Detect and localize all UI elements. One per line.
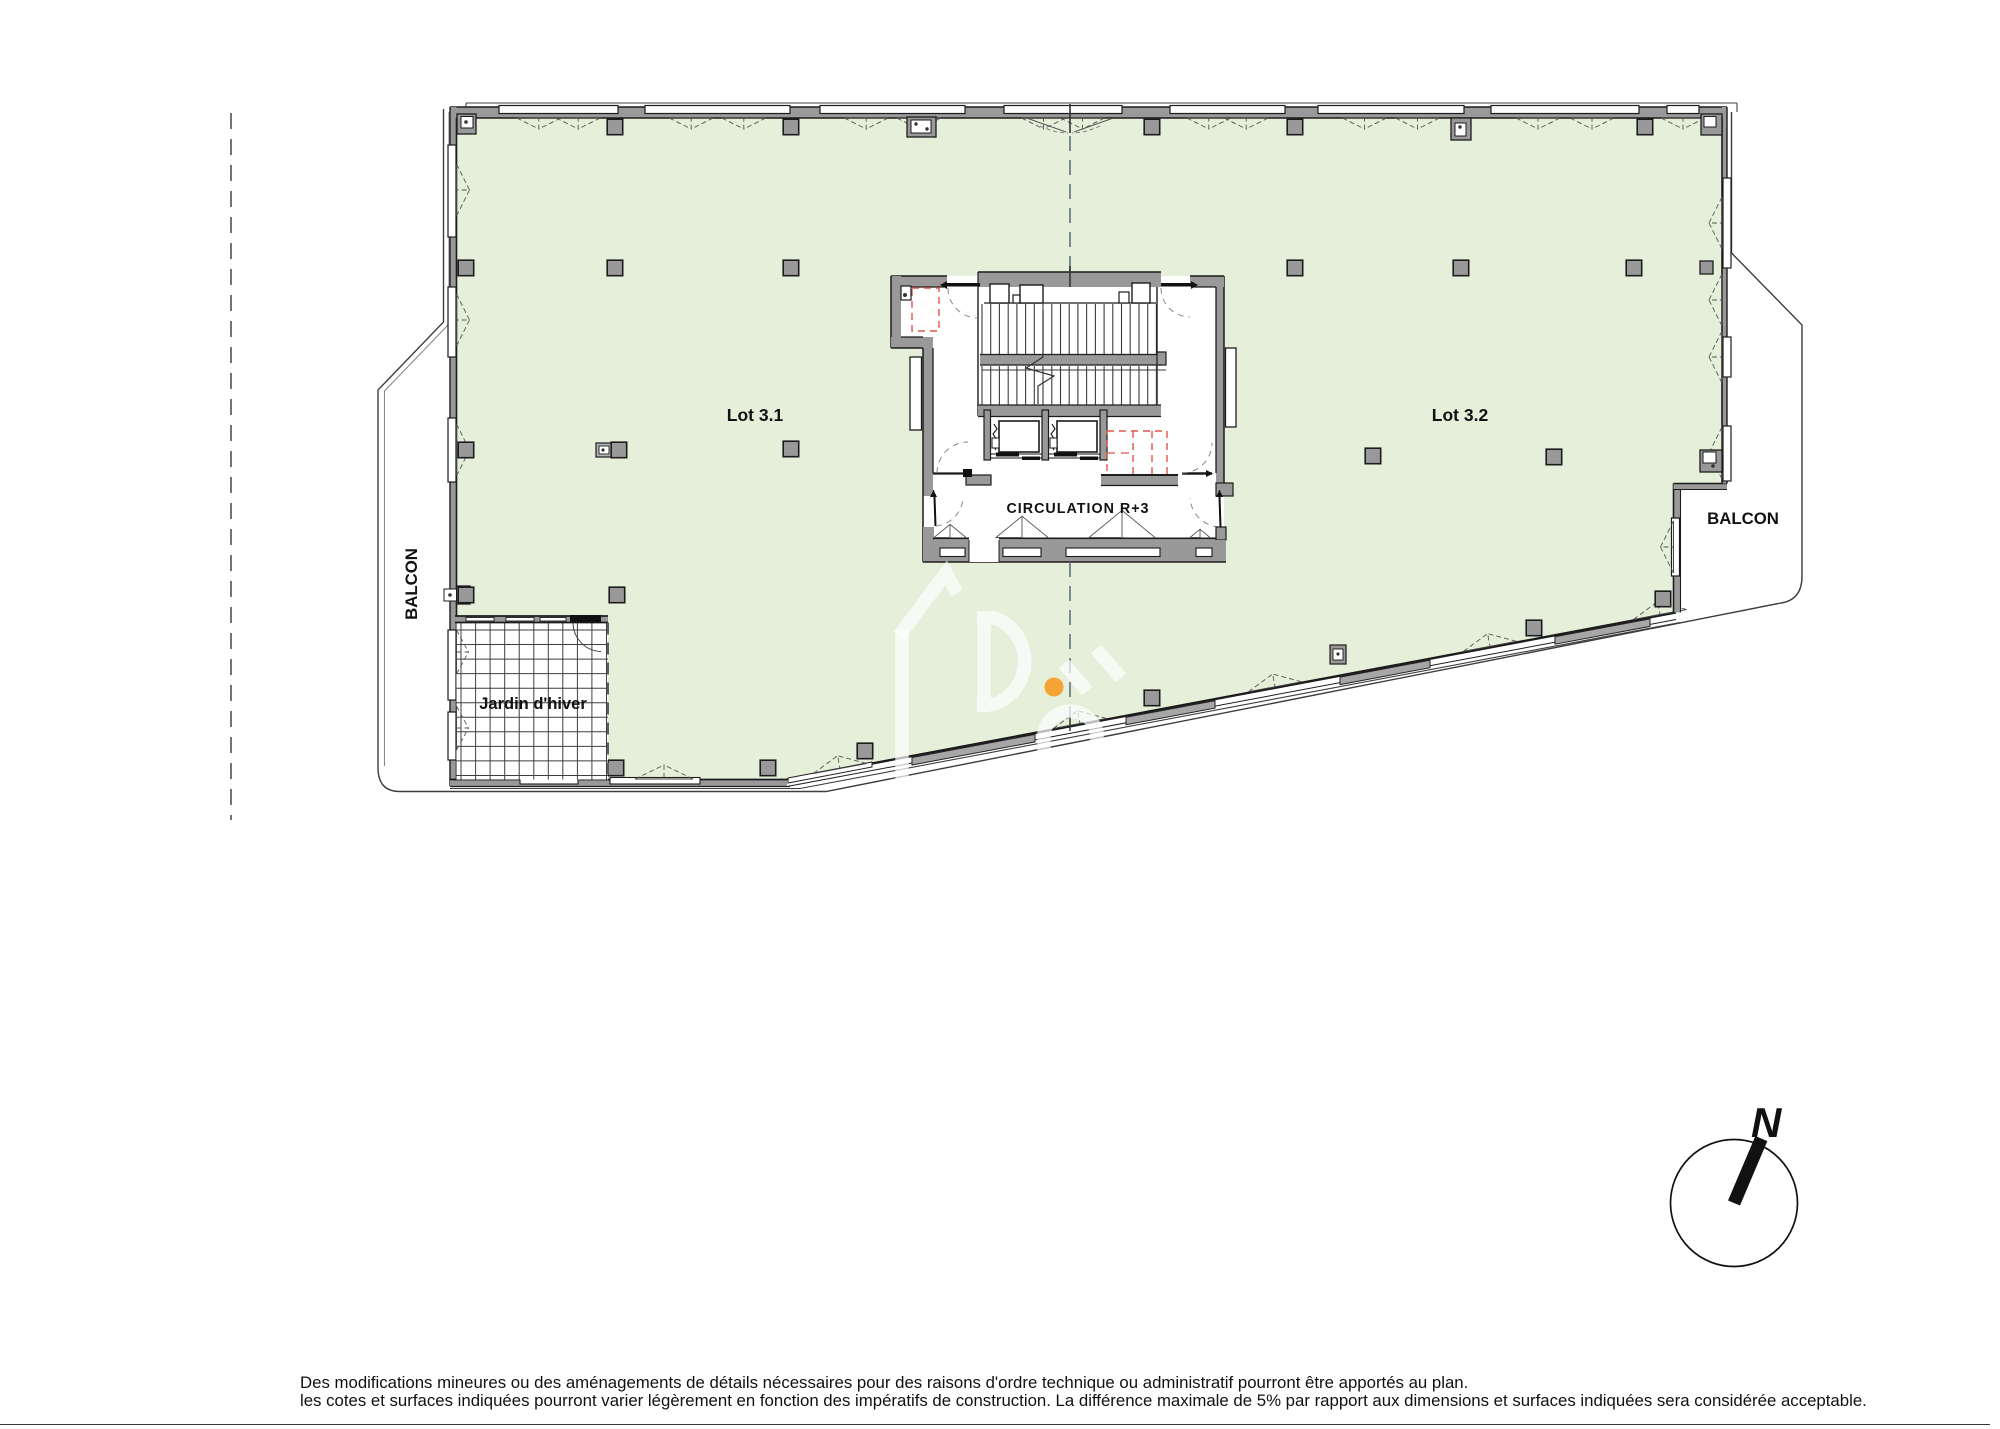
svg-text:Lot 3.2: Lot 3.2	[1432, 405, 1489, 425]
svg-text:les cotes et surfaces indiquée: les cotes et surfaces indiquées pourront…	[300, 1391, 1867, 1410]
svg-text:CIRCULATION R+3: CIRCULATION R+3	[1006, 501, 1149, 517]
svg-text:Jardin d'hiver: Jardin d'hiver	[479, 695, 587, 713]
svg-text:N: N	[1751, 1099, 1783, 1146]
svg-text:BALCON: BALCON	[402, 548, 421, 620]
svg-text:Des modifications mineures ou: Des modifications mineures ou des aménag…	[300, 1373, 1468, 1392]
svg-text:Lot 3.1: Lot 3.1	[727, 405, 784, 425]
svg-text:BALCON: BALCON	[1707, 509, 1779, 528]
